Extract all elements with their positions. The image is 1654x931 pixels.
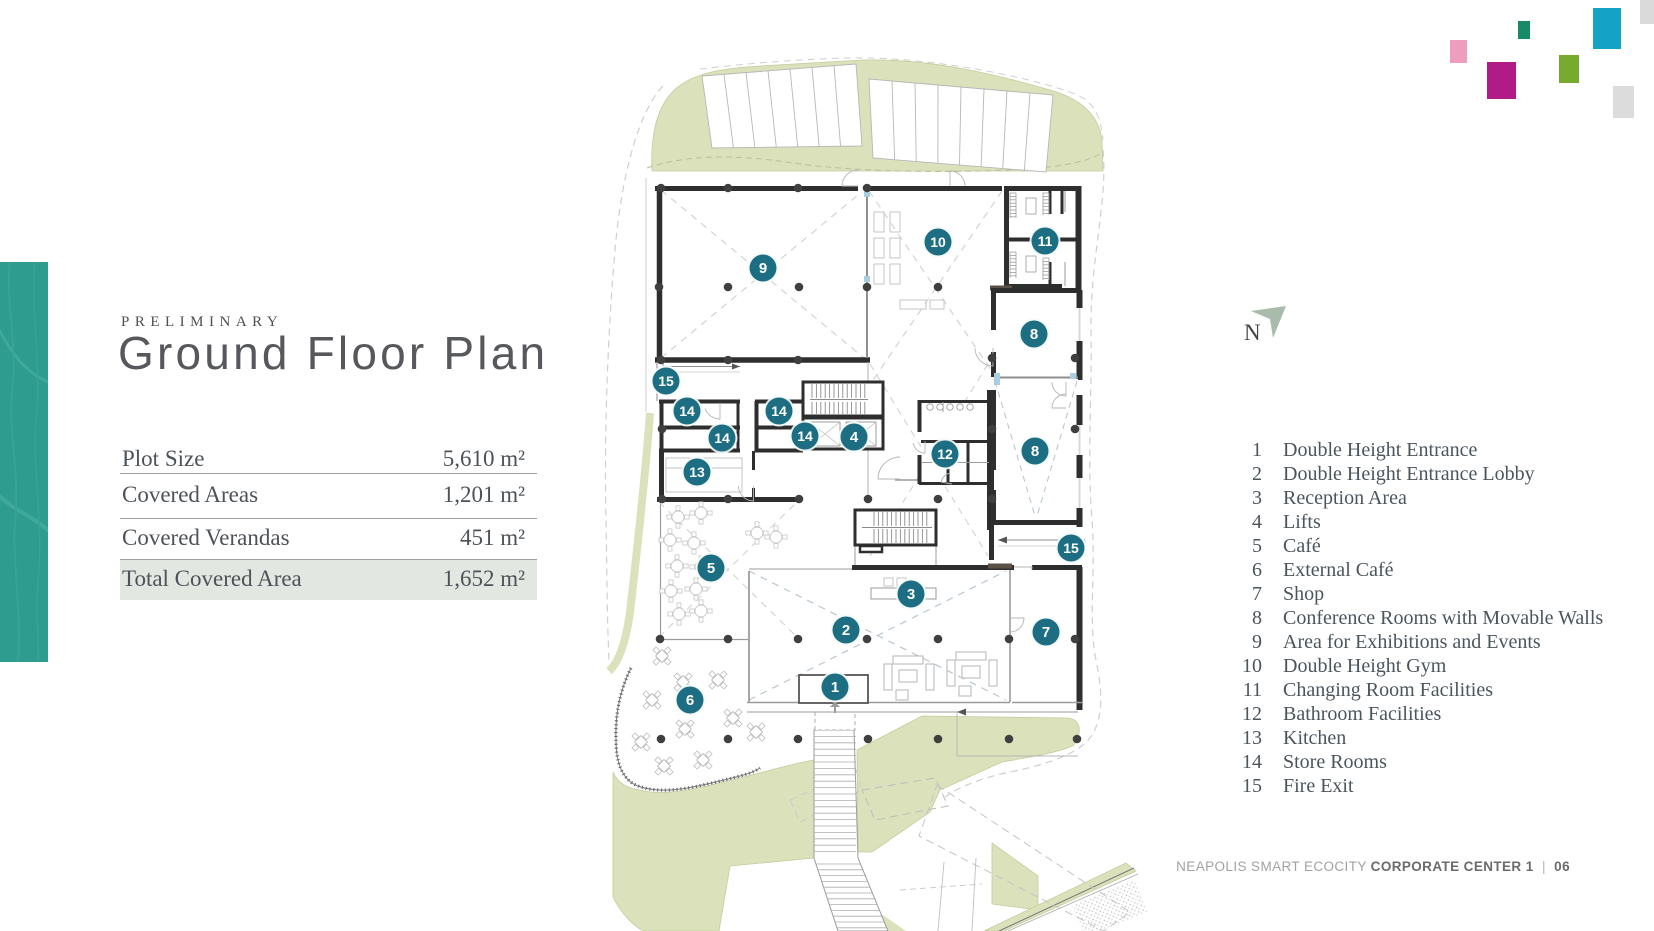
svg-text:14: 14 [797, 428, 813, 444]
svg-text:8: 8 [1030, 326, 1038, 343]
svg-text:11: 11 [1038, 233, 1053, 249]
svg-text:15: 15 [1063, 540, 1079, 556]
svg-text:14: 14 [679, 403, 695, 419]
svg-text:10: 10 [930, 234, 946, 250]
svg-text:3: 3 [907, 586, 915, 603]
svg-text:5: 5 [707, 560, 715, 577]
svg-text:13: 13 [689, 464, 705, 480]
svg-text:1: 1 [831, 679, 839, 696]
svg-text:8: 8 [1031, 443, 1039, 460]
svg-text:15: 15 [658, 373, 674, 389]
svg-text:14: 14 [714, 430, 730, 446]
svg-text:14: 14 [771, 403, 787, 419]
svg-text:4: 4 [850, 429, 859, 446]
svg-text:9: 9 [759, 260, 767, 277]
svg-text:7: 7 [1042, 624, 1050, 641]
svg-text:6: 6 [686, 692, 694, 709]
svg-text:12: 12 [937, 446, 953, 462]
svg-text:2: 2 [842, 622, 850, 639]
